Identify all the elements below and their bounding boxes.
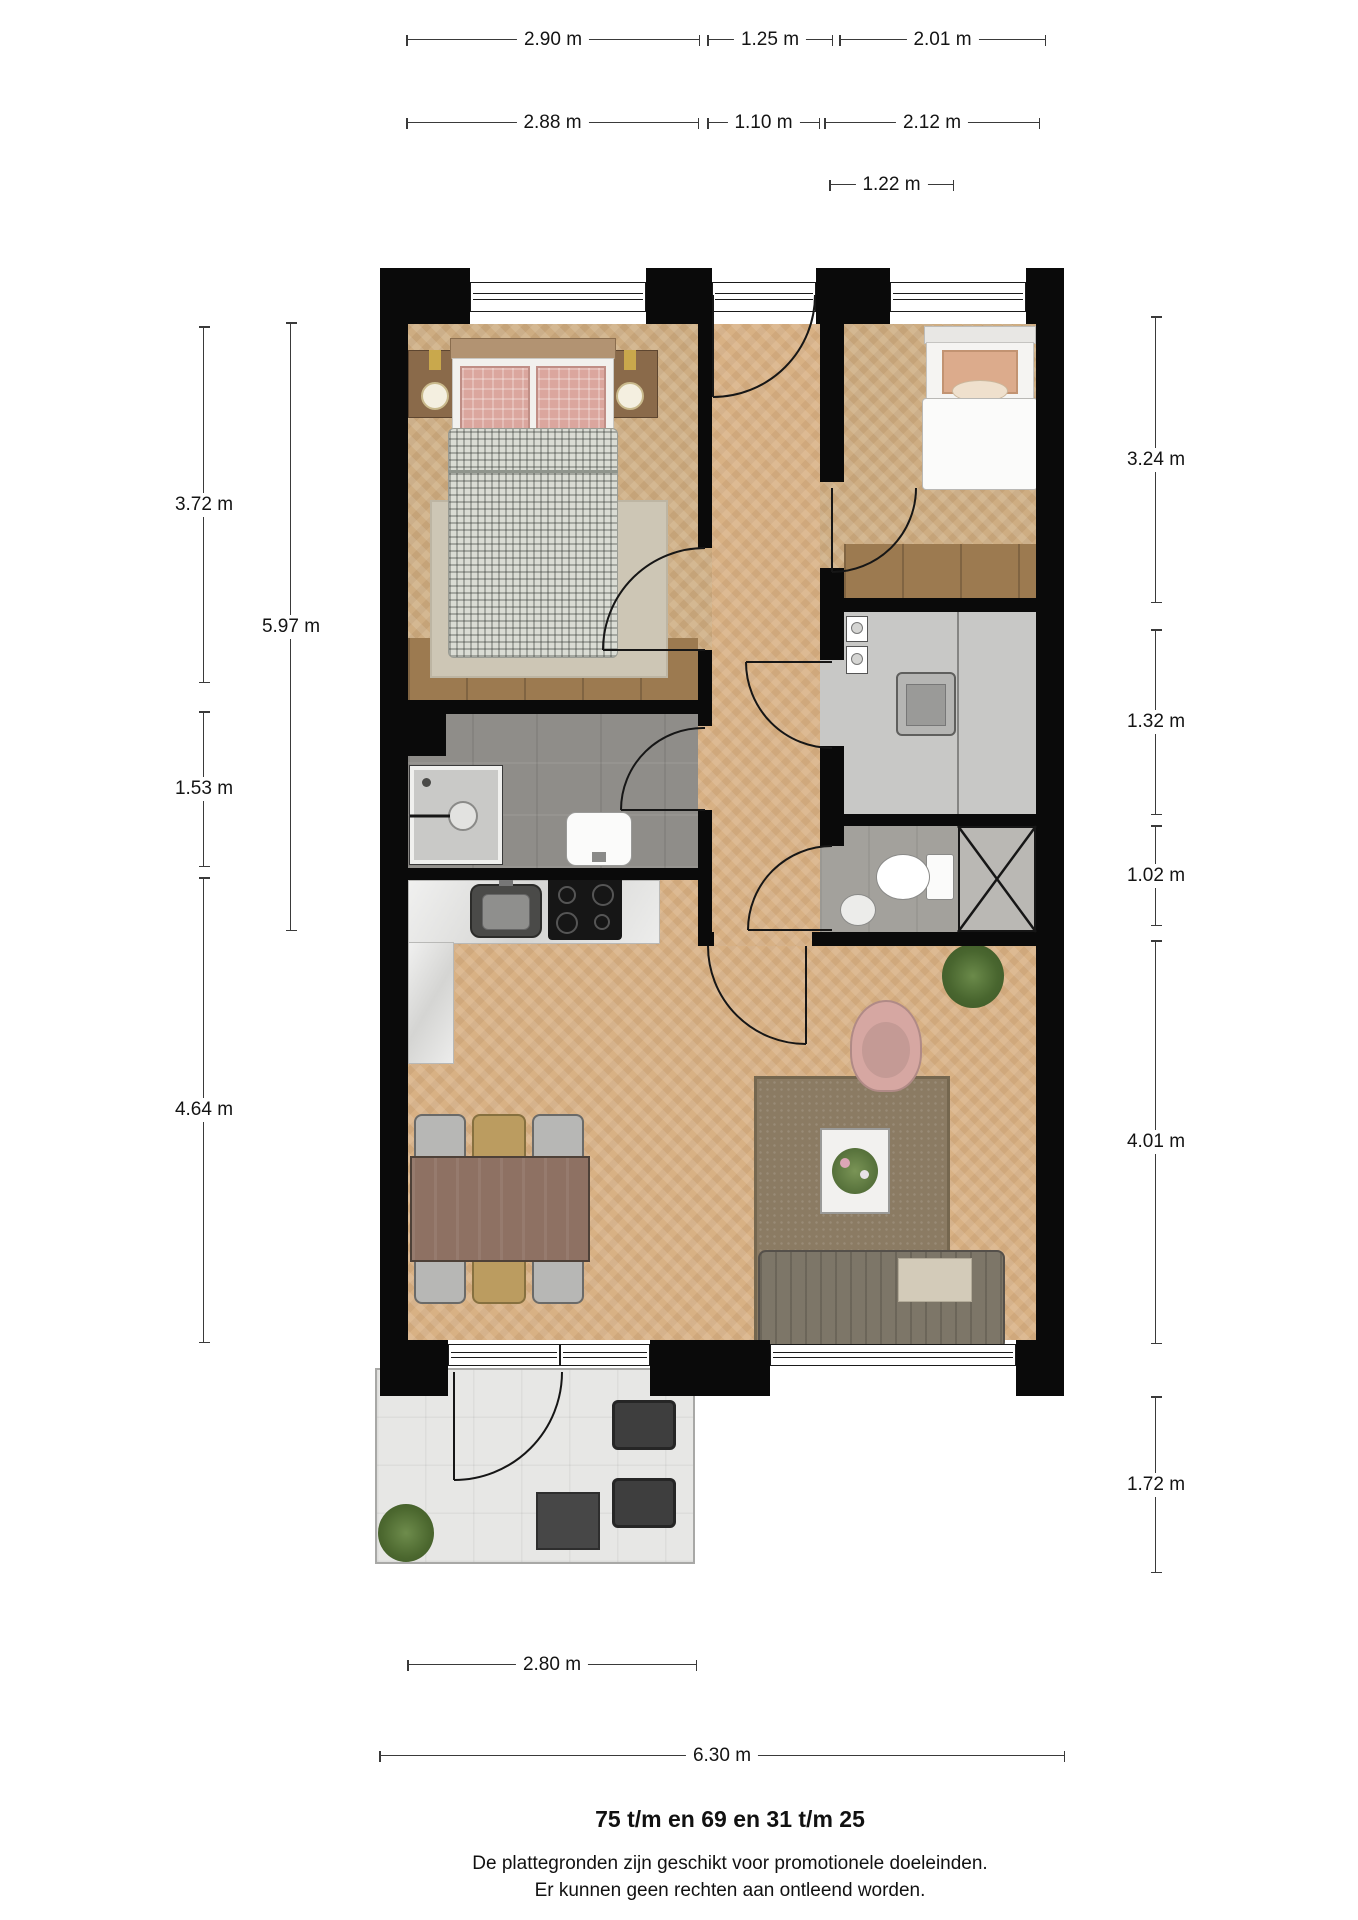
- dimension: 1.25 m: [708, 39, 832, 40]
- dimension: 4.01 m: [1155, 941, 1156, 1343]
- burner: [556, 912, 578, 934]
- wall-top-pier: [380, 268, 470, 324]
- wall-right: [1036, 268, 1064, 1368]
- wall-bath-left-bottom: [408, 868, 712, 880]
- wall-hall-right: [820, 746, 844, 846]
- dining-chair: [472, 1114, 526, 1160]
- dimension: 1.72 m: [1155, 1397, 1156, 1572]
- dining-chair: [414, 1114, 466, 1160]
- wall-top-pier: [1026, 268, 1064, 324]
- window: [470, 282, 646, 312]
- burner: [594, 914, 610, 930]
- toilet-bowl: [876, 854, 930, 900]
- wall-master-hall: [698, 650, 712, 726]
- wall-bottom-pier: [1016, 1340, 1064, 1396]
- dimension-label: 2.80 m: [516, 1653, 588, 1677]
- dimension-label: 1.22 m: [855, 173, 927, 197]
- washbasin: [840, 894, 876, 926]
- dimension: 4.64 m: [203, 878, 204, 1342]
- pillow: [536, 366, 606, 432]
- dimension-label: 1.25 m: [734, 28, 806, 52]
- dimension-label: 4.01 m: [1120, 1130, 1192, 1154]
- dining-table: [410, 1156, 590, 1262]
- dimension: 1.02 m: [1155, 826, 1156, 925]
- wall-top-pier: [646, 268, 712, 324]
- dining-chair: [532, 1114, 584, 1160]
- dimension: 2.80 m: [408, 1664, 696, 1665]
- dimension-label: 4.64 m: [168, 1098, 240, 1122]
- wall-bottom-pier: [380, 1340, 448, 1396]
- dimension: 2.12 m: [825, 122, 1039, 123]
- terrace-chair: [612, 1478, 676, 1528]
- dimension-label: 1.72 m: [1120, 1473, 1192, 1497]
- toilet-tank: [926, 854, 954, 900]
- dimension: 1.10 m: [708, 122, 819, 123]
- shower-head: [448, 801, 478, 831]
- disclaimer-line-2: Er kunnen geen rechten aan ontleend word…: [170, 1877, 1290, 1904]
- dimension: 2.01 m: [840, 39, 1045, 40]
- wall-master-hall: [698, 324, 712, 548]
- terrace-door-unit: [448, 1344, 560, 1366]
- washbasin-faucet: [592, 852, 606, 862]
- wall-master-bottom: [408, 700, 712, 714]
- pillow: [460, 366, 530, 432]
- terrace-plant: [378, 1504, 434, 1562]
- double-bed-headboard: [450, 338, 616, 360]
- dimension-label: 6.30 m: [686, 1744, 758, 1768]
- terrace-chair: [612, 1400, 676, 1450]
- terrace-window: [560, 1344, 650, 1366]
- dimension-label: 3.24 m: [1120, 448, 1192, 472]
- wall-left: [380, 268, 408, 1368]
- meter-dial: [851, 622, 863, 634]
- flower-bouquet: [832, 1148, 878, 1194]
- duvet-fold: [448, 470, 618, 473]
- lamp: [421, 382, 449, 410]
- dimension: 1.32 m: [1155, 630, 1156, 814]
- dimension-label: 1.32 m: [1120, 710, 1192, 734]
- dimension-label: 1.10 m: [727, 111, 799, 135]
- footer: 75 t/m en 69 en 31 t/m 25: [170, 1806, 1290, 1833]
- wall-master-hall: [698, 810, 712, 932]
- burner: [558, 886, 576, 904]
- floor-plan-page: 2.90 m 1.25 m 2.01 m 2.88 m 1.10 m 2.12 …: [0, 0, 1358, 1920]
- burner: [592, 884, 614, 906]
- wall-hall-bottom: [698, 932, 714, 946]
- dimension-label: 2.90 m: [517, 28, 589, 52]
- wall-top-pier: [816, 268, 890, 324]
- living-window: [770, 1344, 1016, 1366]
- flower: [840, 1158, 850, 1168]
- dimension-label: 2.12 m: [896, 111, 968, 135]
- wall-bedroom2-bottom: [820, 598, 1036, 612]
- dimension: 1.53 m: [203, 712, 204, 866]
- wall-hall-bottom: [812, 932, 1036, 946]
- shower: [958, 826, 1036, 932]
- dimension: 2.88 m: [407, 122, 698, 123]
- flower: [860, 1170, 869, 1179]
- dimension: 3.24 m: [1155, 317, 1156, 602]
- dining-chair: [472, 1258, 526, 1304]
- meter-dial: [851, 653, 863, 665]
- duvet: [448, 428, 618, 658]
- dimension: 6.30 m: [380, 1755, 1064, 1756]
- terrace-table: [536, 1492, 600, 1550]
- dimension-label: 1.02 m: [1120, 864, 1192, 888]
- dimension: 3.72 m: [203, 327, 204, 682]
- wall-hall-right: [820, 568, 844, 660]
- shower-drain: [422, 778, 431, 787]
- lamp: [616, 382, 644, 410]
- plant: [942, 944, 1004, 1008]
- disclaimer-line-1: De plattegronden zijn geschikt voor prom…: [170, 1850, 1290, 1877]
- dimension-label: 2.88 m: [516, 111, 588, 135]
- dining-chair: [532, 1258, 584, 1304]
- dimension: 5.97 m: [290, 323, 291, 930]
- sofa-blanket: [898, 1258, 972, 1302]
- dimension-label: 1.53 m: [168, 777, 240, 801]
- dimension-label: 2.01 m: [906, 28, 978, 52]
- footer-disclaimer: De plattegronden zijn geschikt voor prom…: [170, 1850, 1290, 1904]
- wall-bottom-pier: [650, 1340, 770, 1396]
- wall-storage-bottom: [820, 814, 1036, 826]
- entry-door-unit: [712, 282, 816, 312]
- wall-notch: [408, 702, 446, 756]
- kitchen-counter-side: [408, 942, 454, 1064]
- dining-chair: [414, 1258, 466, 1304]
- single-bed-duvet: [922, 398, 1038, 490]
- washing-machine-door: [906, 684, 946, 726]
- plan-title: 75 t/m en 69 en 31 t/m 25: [170, 1806, 1290, 1833]
- dimension: 1.22 m: [830, 184, 953, 185]
- dimension-label: 3.72 m: [168, 493, 240, 517]
- window: [890, 282, 1026, 312]
- lamp-stem: [429, 350, 441, 370]
- dimension-label: 5.97 m: [255, 615, 327, 639]
- kitchen-sink-basin: [482, 894, 530, 930]
- wall-hall-right: [820, 324, 844, 482]
- armchair-seat: [862, 1022, 910, 1078]
- dimension: 2.90 m: [407, 39, 699, 40]
- second-bedroom-wardrobe: [844, 544, 1036, 598]
- lamp-stem: [624, 350, 636, 370]
